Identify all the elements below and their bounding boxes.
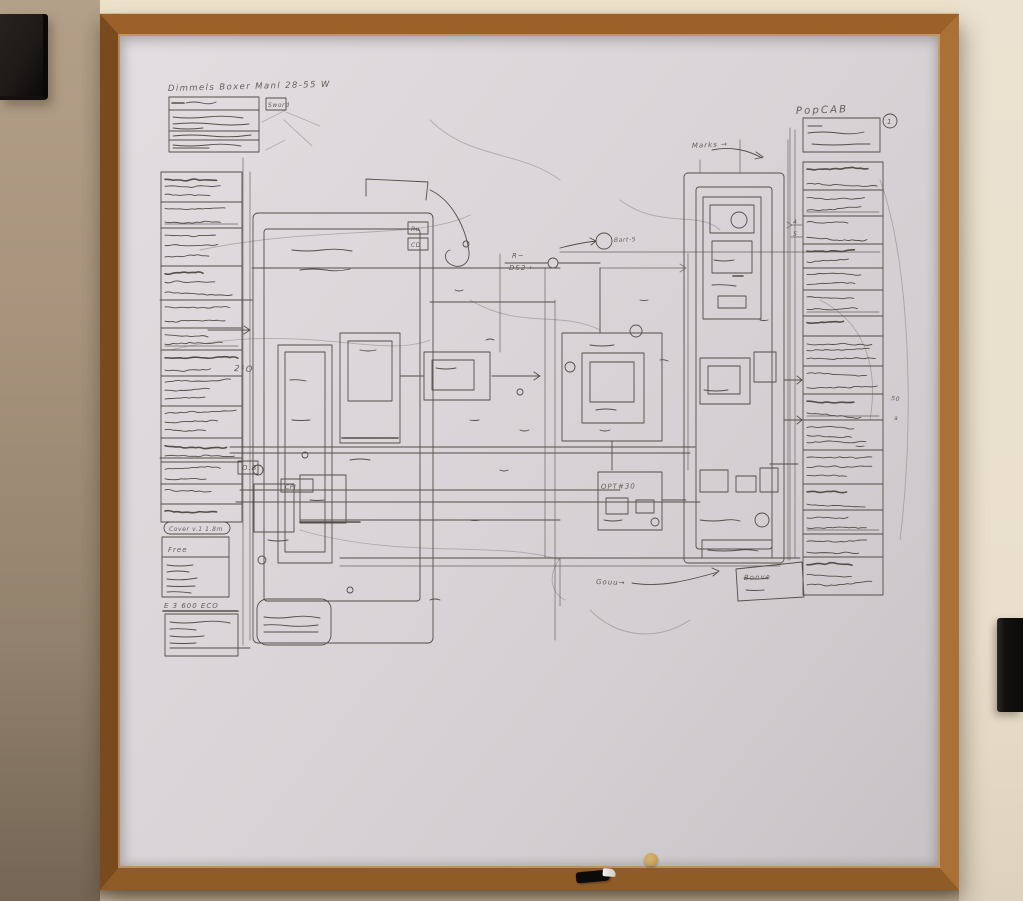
sketch-annotation: R~ bbox=[512, 252, 525, 260]
wall-left bbox=[0, 0, 100, 901]
right-legend-badge: 1 bbox=[887, 118, 892, 126]
left-legend-section2-header: E 3 600 ECO bbox=[164, 602, 219, 610]
header-table-sketch: Sword bbox=[169, 97, 320, 152]
wall-object-right bbox=[997, 618, 1023, 712]
sketch-annotation: Bonve bbox=[744, 573, 771, 582]
left-legend-sketch: Cover v.1 1.8m Free E 3 600 ECO bbox=[161, 172, 250, 656]
left-legend-free-label: Free bbox=[168, 546, 188, 554]
bottom-cluster-sketch bbox=[340, 558, 804, 634]
sketch-annotation: 50 bbox=[891, 395, 901, 403]
photo-scene: Dimmels Boxer Manl 28-55 W Sword Cover v… bbox=[0, 0, 1023, 901]
wall-speaker bbox=[0, 14, 48, 100]
sketch-annotation: OPT#30 bbox=[601, 482, 636, 491]
sketch-annotation: Bart-5 bbox=[614, 236, 636, 244]
sketch-annotation: DS2→ bbox=[509, 264, 533, 272]
whiteboard-surface: Dimmels Boxer Manl 28-55 W Sword Cover v… bbox=[120, 36, 938, 866]
tick-marks-sketch bbox=[430, 241, 864, 600]
sketch-annotation: O.B bbox=[242, 464, 257, 472]
sketch-title-text: Dimmels Boxer Manl 28-55 W bbox=[168, 80, 331, 94]
center-module-sketch bbox=[400, 233, 612, 400]
sketch-annotation: CD bbox=[411, 242, 421, 249]
wall-right bbox=[959, 0, 1023, 901]
center-right-stack-sketch bbox=[560, 268, 686, 530]
schematic-sketch: Dimmels Boxer Manl 28-55 W Sword Cover v… bbox=[120, 36, 938, 866]
sketch-annotation: 5 bbox=[793, 231, 797, 238]
right-legend-heading: PopCAB bbox=[796, 104, 849, 117]
left-machine-sketch bbox=[160, 158, 469, 645]
sketch-annotation: 4 bbox=[793, 219, 797, 226]
sketch-annotation: Gouu→ bbox=[596, 578, 626, 587]
header-tag-text: Sword bbox=[268, 102, 290, 109]
sketch-annotation: CPI bbox=[285, 484, 296, 491]
right-legend-sketch: PopCAB 1 bbox=[787, 104, 897, 595]
wall-top bbox=[100, 0, 959, 14]
sketch-title: Dimmels Boxer Manl 28-55 W bbox=[168, 80, 331, 94]
right-machine-sketch bbox=[684, 130, 802, 563]
magnet-dot bbox=[644, 853, 658, 866]
faint-strokes-sketch bbox=[170, 120, 908, 560]
sketch-annotation: 2¹O bbox=[234, 364, 254, 375]
sketch-annotation: a bbox=[894, 415, 898, 422]
sketch-annotation: Ru bbox=[411, 226, 420, 233]
whiteboard-frame: Dimmels Boxer Manl 28-55 W Sword Cover v… bbox=[100, 14, 959, 890]
left-legend-section1-header: Cover v.1 1.8m bbox=[169, 526, 223, 533]
